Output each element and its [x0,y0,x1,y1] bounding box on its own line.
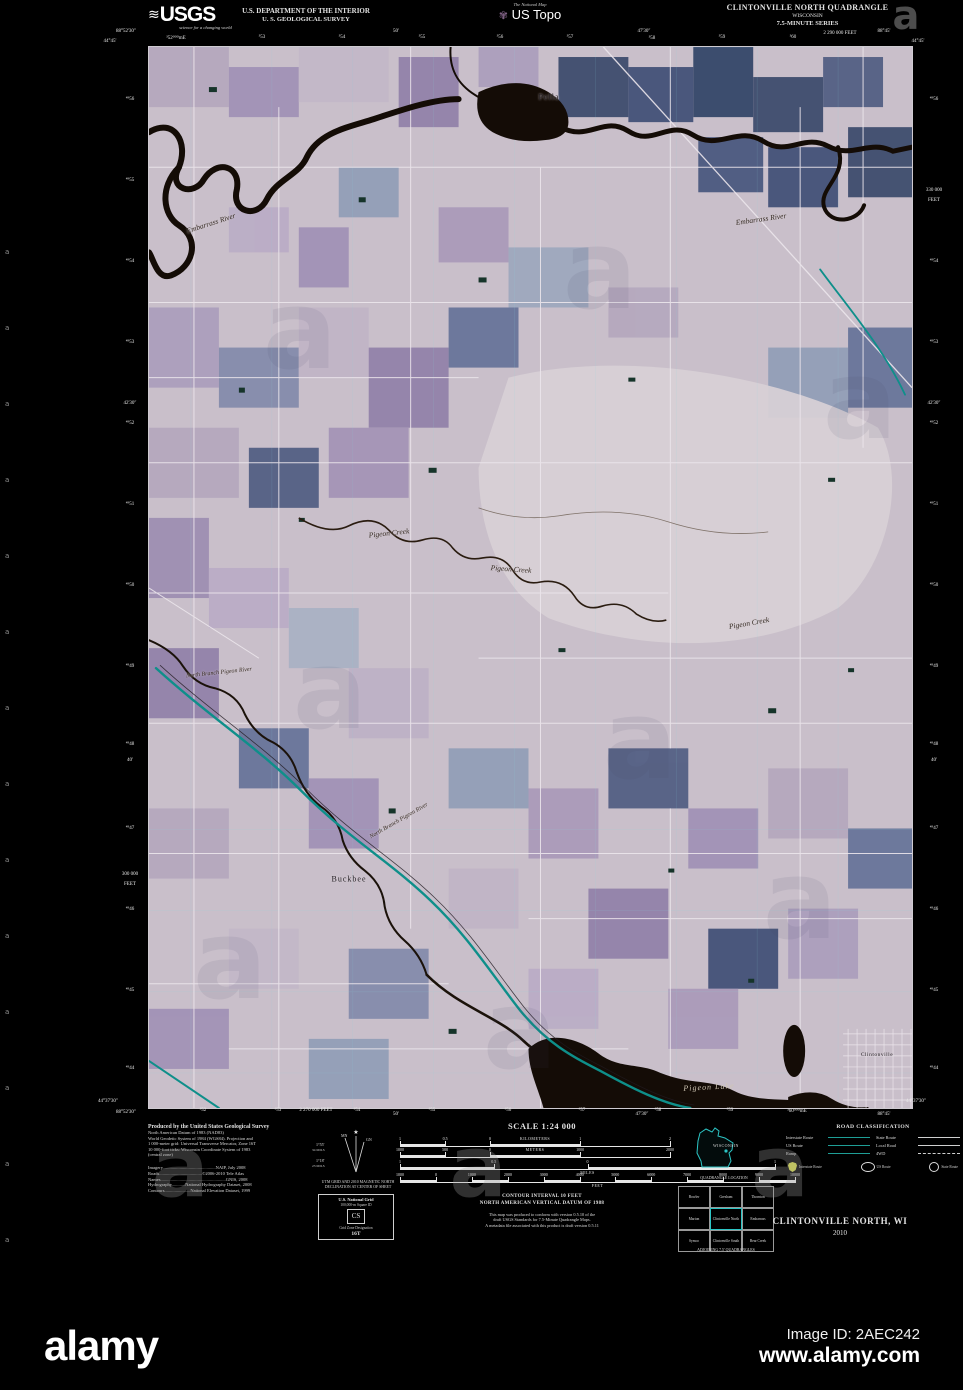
alamy-url: www.alamy.com [759,1344,920,1368]
alamy-watermark-letter: a [293,626,367,754]
alamy-watermark-letter: a [151,1119,208,1218]
alamy-edge-mark: a [5,1236,9,1244]
alamy-edge-mark: a [5,1160,9,1168]
alamy-watermark-letter: a [823,336,897,464]
alamy-edge-mark: a [5,932,9,940]
alamy-logo: alamy [44,1322,158,1370]
alamy-edge-mark: a [5,1084,9,1092]
alamy-image-id: Image ID: 2AEC242 [787,1326,920,1343]
alamy-edge-mark: a [5,324,9,332]
alamy-edge-mark: a [5,704,9,712]
alamy-watermark-letter: a [751,1119,808,1218]
alamy-watermark-letter: a [893,0,920,39]
alamy-edge-mark: a [5,780,9,788]
alamy-watermark-letter: a [563,206,637,334]
alamy-edge-mark: a [5,856,9,864]
alamy-edge-mark: a [5,400,9,408]
alamy-watermark-letter: a [603,676,677,804]
alamy-edge-mark: a [5,476,9,484]
alamy-watermark-letter: a [449,1119,506,1218]
alamy-watermark-letter: a [263,266,337,394]
alamy-edge-mark: a [5,248,9,256]
alamy-edge-mark: a [5,1008,9,1016]
alamy-edge-mark: a [5,628,9,636]
alamy-edge-mark: a [5,552,9,560]
alamy-watermark-letter: a [763,836,837,964]
watermark-layer: aaaaaaaaaaaaaaaaaaaaaaaaaa [0,0,963,1390]
alamy-watermark-letter: a [193,896,267,1024]
usgs-topo-map-stock-image: ≋USGS science for a changing world U.S. … [0,0,963,1390]
alamy-watermark-letter: a [483,966,557,1094]
